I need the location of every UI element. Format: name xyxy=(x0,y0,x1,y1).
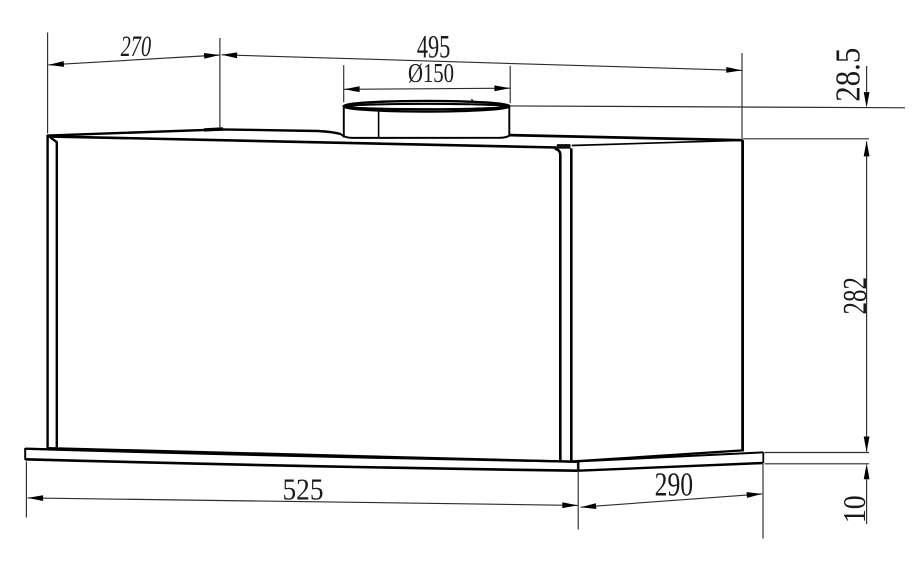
svg-text:Ø150: Ø150 xyxy=(408,57,454,88)
svg-text:525: 525 xyxy=(283,472,324,507)
svg-text:10: 10 xyxy=(836,495,872,523)
svg-text:270: 270 xyxy=(121,30,152,63)
svg-text:28.5: 28.5 xyxy=(829,48,868,102)
svg-text:282: 282 xyxy=(837,277,874,315)
svg-text:290: 290 xyxy=(655,466,694,503)
